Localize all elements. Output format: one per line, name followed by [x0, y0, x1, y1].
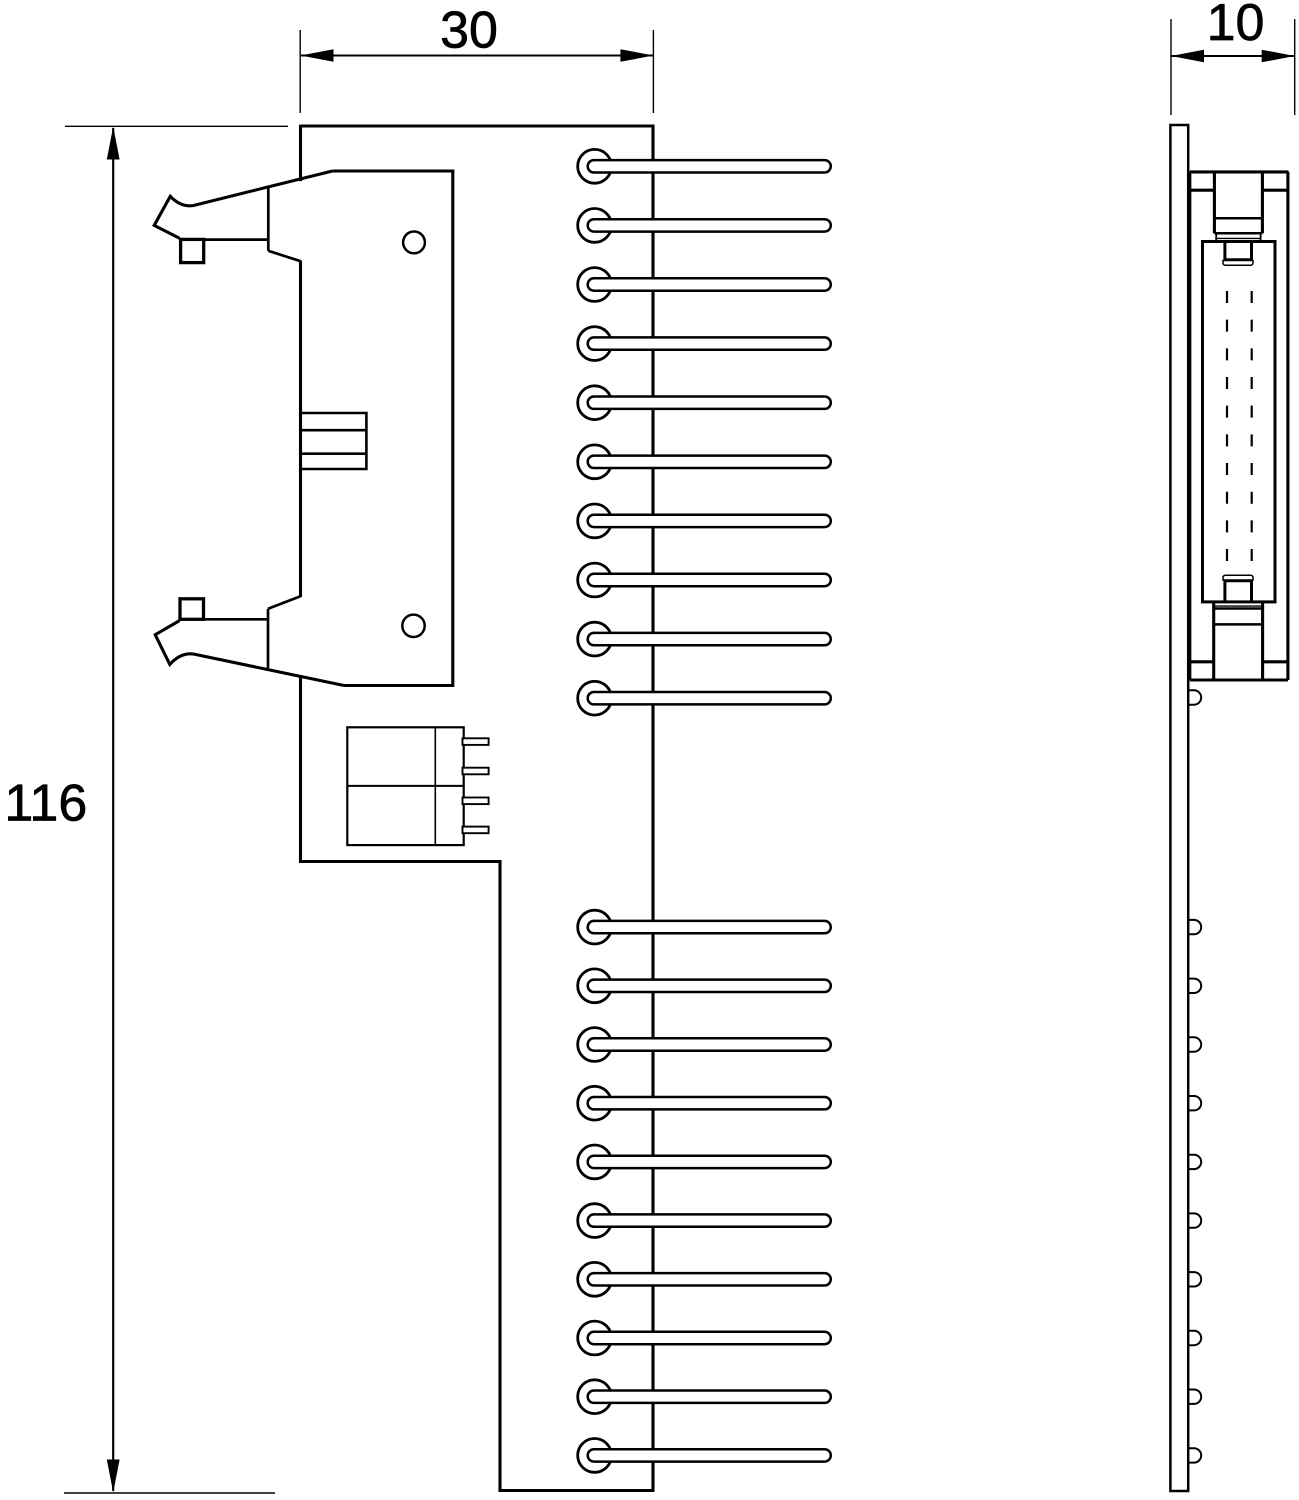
svg-text:10: 10 — [1207, 0, 1265, 52]
svg-text:30: 30 — [440, 1, 498, 59]
svg-text:116: 116 — [4, 775, 87, 833]
